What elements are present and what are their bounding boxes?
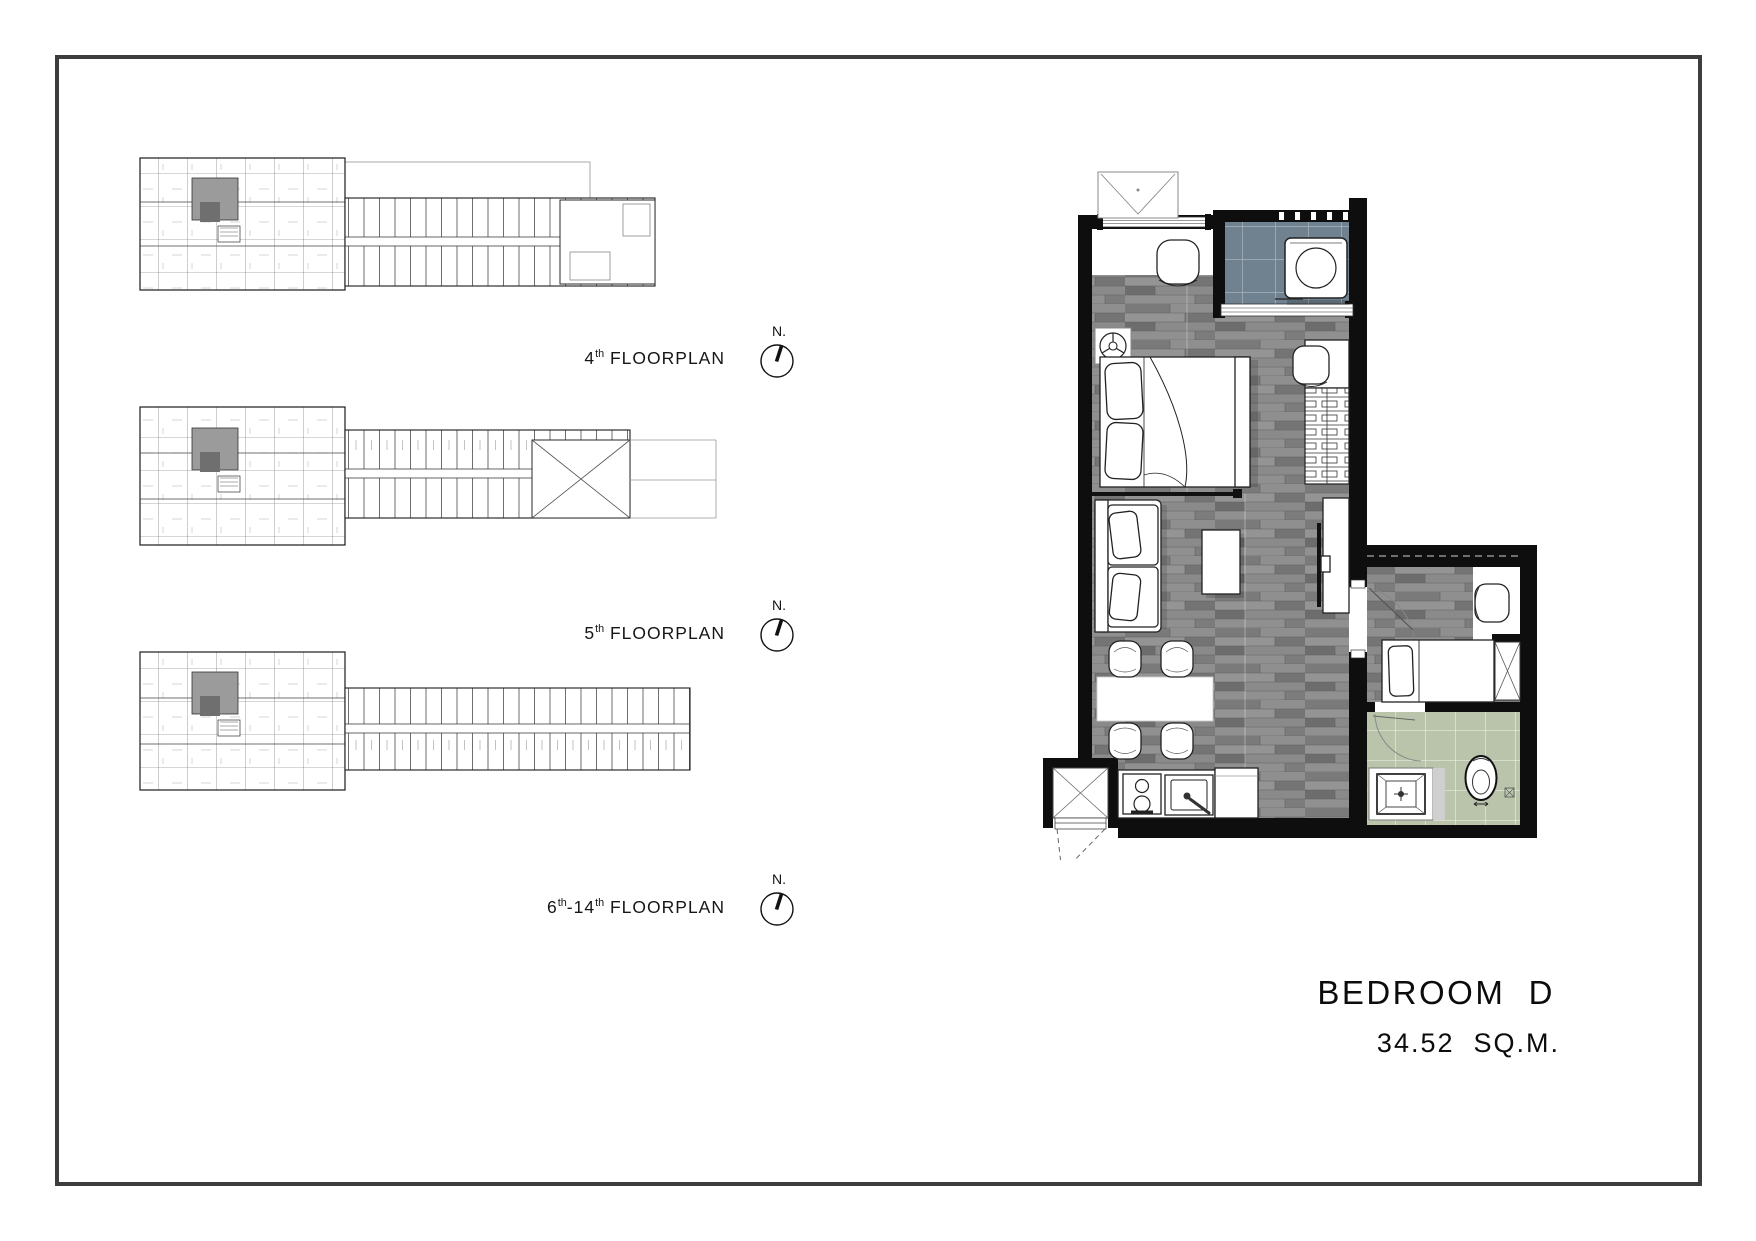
floorplan-label-4th: 4th FLOORPLAN — [425, 348, 725, 369]
compass-needle — [777, 346, 782, 362]
single-bed — [1382, 640, 1494, 702]
compass-needle — [777, 894, 782, 910]
unit-title: BEDROOM D — [1040, 974, 1555, 1012]
coffee-table — [1202, 530, 1244, 598]
bedroom2-chair — [1475, 584, 1509, 622]
compass-icon-5th: N. — [754, 598, 800, 656]
floorplan-5th-thumbnail — [140, 407, 716, 545]
dining-stool — [1109, 723, 1141, 759]
floorplan-6th-14th-thumbnail — [140, 652, 690, 790]
compass-north-label: N. — [772, 598, 786, 613]
desk-chair — [1293, 346, 1329, 387]
floorplan-label-6th-14th: 6th-14th FLOORPLAN — [425, 897, 725, 918]
dining-stool — [1161, 641, 1193, 677]
shaft — [1495, 642, 1520, 700]
floorplan-label-5th: 5th FLOORPLAN — [425, 623, 725, 644]
kitchen-sink — [1165, 775, 1213, 815]
double-bed — [1100, 357, 1258, 487]
dining-stool — [1109, 641, 1141, 677]
dining-table — [1097, 677, 1213, 721]
ac-condenser-unit — [1098, 172, 1178, 218]
sofa — [1095, 500, 1167, 632]
washing-machine — [1285, 238, 1349, 305]
floorplan-brochure-page: 4th FLOORPLAN 5th FLOORPLAN 6th-14th FLO… — [0, 0, 1756, 1241]
stove — [1123, 774, 1161, 814]
dining-stool — [1161, 723, 1193, 759]
unit-plan-bedroom-d — [945, 160, 1545, 860]
fridge — [1215, 768, 1258, 818]
compass-icon-6th-14th: N. — [754, 872, 800, 930]
compass-icon-4th: N. — [754, 324, 800, 382]
entrance-door — [1053, 768, 1108, 860]
bathroom-vanity — [1369, 768, 1445, 820]
wardrobe — [1305, 388, 1349, 484]
bedroom-chair — [1157, 240, 1199, 286]
compass-needle — [777, 620, 782, 636]
compass-north-label: N. — [772, 324, 786, 339]
compass-north-label: N. — [772, 872, 786, 887]
floorplan-4th-thumbnail — [140, 158, 655, 290]
unit-area: 34.52 SQ.M. — [1040, 1028, 1560, 1059]
building-floorplans — [100, 140, 800, 950]
